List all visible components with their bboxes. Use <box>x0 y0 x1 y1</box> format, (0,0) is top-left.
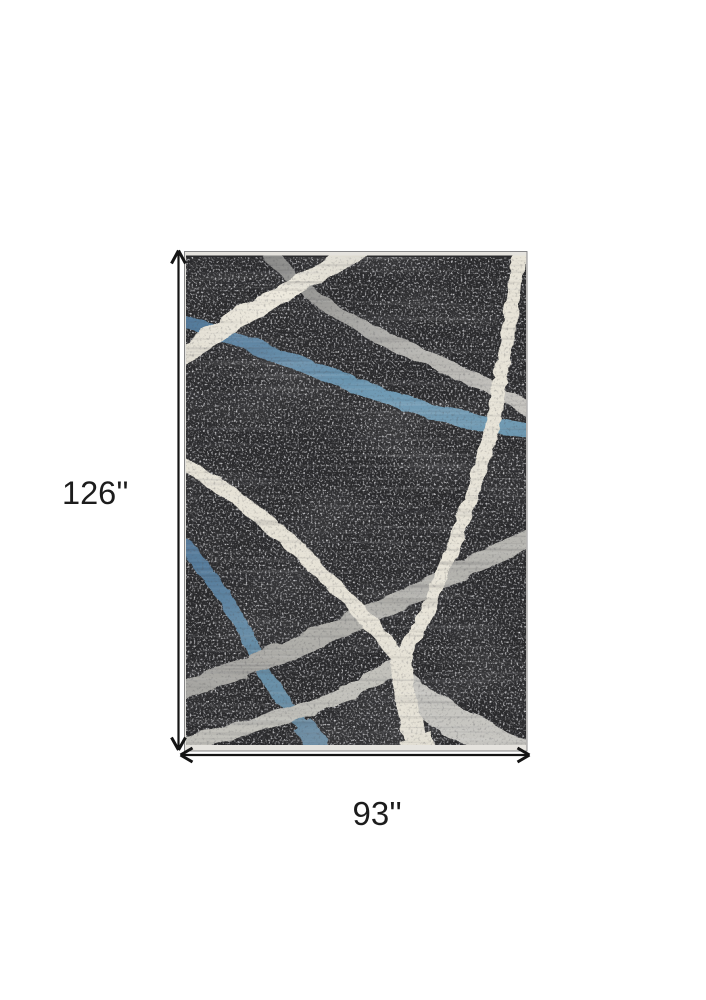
svg-text:93'': 93'' <box>353 795 402 832</box>
svg-text:126'': 126'' <box>62 475 129 511</box>
